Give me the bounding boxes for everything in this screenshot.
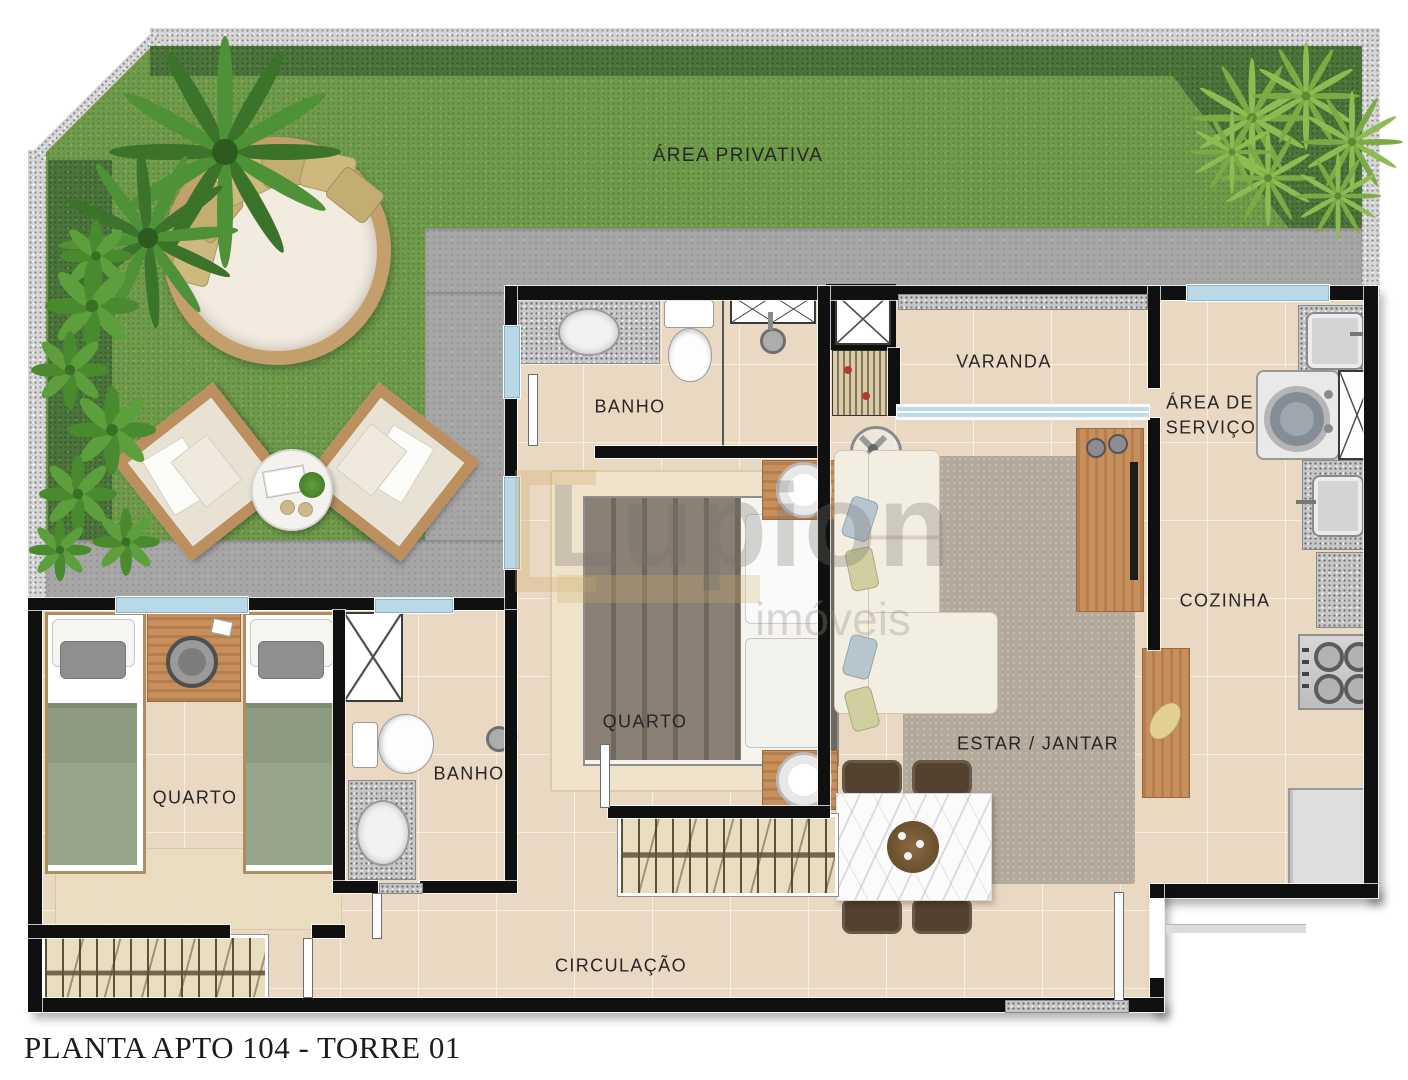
entry-door-gap bbox=[1150, 898, 1164, 978]
bed-pillow bbox=[745, 638, 821, 748]
entry-threshold bbox=[1005, 1000, 1129, 1013]
dining-chair bbox=[912, 898, 972, 934]
shower-head bbox=[760, 328, 786, 354]
wall-bath2-bottom-a bbox=[333, 881, 378, 893]
label-banho-suite: BANHO bbox=[594, 397, 665, 418]
wall-bedroom-bottom bbox=[608, 806, 830, 818]
wall-twinroom-bottom-b bbox=[312, 925, 345, 938]
wall-bedroom-right bbox=[818, 286, 830, 818]
label-area-servico-1: ÁREA DE bbox=[1166, 393, 1254, 414]
gravel-border-top bbox=[150, 28, 1380, 48]
label-area-servico-2: SERVIÇO bbox=[1166, 418, 1257, 439]
wall-bath2-left bbox=[333, 610, 345, 893]
label-quarto-solteiros: QUARTO bbox=[153, 788, 238, 809]
wall-bath2-right bbox=[505, 610, 517, 893]
single-bed bbox=[243, 612, 344, 874]
label-banho-social: BANHO bbox=[433, 764, 504, 785]
wall-right bbox=[1364, 286, 1378, 898]
door-leaf-quarto-solteiros bbox=[303, 938, 313, 998]
window bbox=[503, 325, 521, 399]
bed-cushion bbox=[258, 641, 324, 679]
window bbox=[115, 596, 249, 614]
table-lamp bbox=[166, 636, 218, 688]
wall-banho-bottom bbox=[595, 446, 830, 458]
table-cup bbox=[280, 500, 295, 515]
refrigerator bbox=[1288, 788, 1374, 892]
outdoor-step bbox=[1166, 924, 1306, 933]
label-cozinha: COZINHA bbox=[1180, 591, 1271, 612]
shower-divider bbox=[722, 300, 724, 448]
kitchen-faucet bbox=[1296, 500, 1316, 504]
bed-cushion bbox=[60, 641, 126, 679]
bed-blanket bbox=[48, 703, 137, 865]
gravel-border-left bbox=[28, 150, 48, 600]
toilet-bowl bbox=[378, 714, 434, 774]
bed-pillow bbox=[745, 514, 821, 624]
laundry-sink bbox=[1306, 312, 1364, 370]
single-bed bbox=[45, 612, 146, 874]
speaker-knob bbox=[1108, 434, 1128, 454]
dining-chair bbox=[912, 760, 972, 796]
wall-kitchen-bottom bbox=[1150, 884, 1378, 898]
wall-bottom bbox=[28, 998, 1164, 1012]
dining-chair bbox=[842, 898, 902, 934]
bath-threshold bbox=[379, 883, 423, 894]
wall-estar-cozinha bbox=[1148, 418, 1160, 650]
walkway-top bbox=[425, 228, 1362, 292]
kitchen-sink bbox=[1312, 475, 1364, 537]
centerpiece-flower bbox=[904, 852, 912, 860]
table-cup bbox=[298, 502, 313, 517]
shaft-x bbox=[835, 293, 891, 345]
burner bbox=[1314, 642, 1344, 672]
window bbox=[503, 476, 521, 570]
brise-flower bbox=[862, 392, 870, 400]
door-leaf-banho-suite bbox=[528, 374, 538, 446]
centerpiece-flower bbox=[916, 840, 924, 848]
wall-bath2-bottom-b bbox=[420, 881, 517, 893]
gravel-border-right bbox=[1360, 28, 1380, 296]
centerpiece-flower bbox=[898, 832, 906, 840]
toilet-bowl bbox=[668, 328, 712, 382]
dining-chair bbox=[842, 760, 902, 796]
floor-plan-canvas: ÁREA PRIVATIVA BANHO VARANDA ÁREA DE SER… bbox=[0, 0, 1408, 1080]
window bbox=[374, 598, 454, 614]
varanda-sill bbox=[898, 294, 1148, 310]
wall-twinroom-bottom-a bbox=[28, 925, 230, 938]
stove-knobs bbox=[1302, 648, 1309, 692]
sofa-chaise bbox=[868, 612, 998, 714]
brise-flower bbox=[844, 366, 852, 374]
bathroom-sink bbox=[356, 800, 410, 866]
washer-knob bbox=[1324, 390, 1333, 399]
door-leaf-quarto-casal bbox=[600, 744, 610, 808]
toilet-symbol bbox=[664, 300, 714, 328]
washer-drum bbox=[1264, 386, 1330, 452]
label-quarto-casal: QUARTO bbox=[603, 712, 688, 733]
washer-knob bbox=[1324, 424, 1333, 433]
table-plant bbox=[299, 472, 325, 498]
shower-stem bbox=[768, 312, 773, 330]
bath-shaft bbox=[343, 612, 403, 702]
walkway-bottom-left bbox=[46, 540, 505, 600]
washing-machine bbox=[1256, 370, 1340, 460]
table-centerpiece bbox=[887, 821, 939, 873]
bed-blanket bbox=[246, 703, 335, 865]
burner bbox=[1314, 674, 1344, 704]
bathroom-sink bbox=[558, 308, 620, 356]
entry-door-leaf bbox=[1114, 892, 1124, 1004]
label-estar-jantar: ESTAR / JANTAR bbox=[957, 734, 1119, 755]
label-varanda: VARANDA bbox=[956, 352, 1052, 373]
window bbox=[1186, 284, 1330, 302]
vertical-garden-brise bbox=[832, 350, 892, 416]
planting-bed-left bbox=[48, 160, 112, 540]
speaker-knob bbox=[1086, 438, 1106, 458]
door-leaf-banho-social bbox=[372, 893, 382, 939]
wall-varanda-servico bbox=[1148, 286, 1160, 388]
tv-screen bbox=[1130, 462, 1138, 580]
wardrobe-shelf bbox=[618, 814, 838, 896]
plan-title: PLANTA APTO 104 - TORRE 01 bbox=[24, 1030, 461, 1066]
sliding-glass-door bbox=[896, 404, 1150, 420]
wall-left-lower bbox=[28, 598, 42, 1012]
label-circulacao: CIRCULAÇÃO bbox=[555, 956, 687, 977]
toilet-symbol bbox=[352, 722, 378, 768]
label-area-privativa: ÁREA PRIVATIVA bbox=[653, 145, 824, 167]
